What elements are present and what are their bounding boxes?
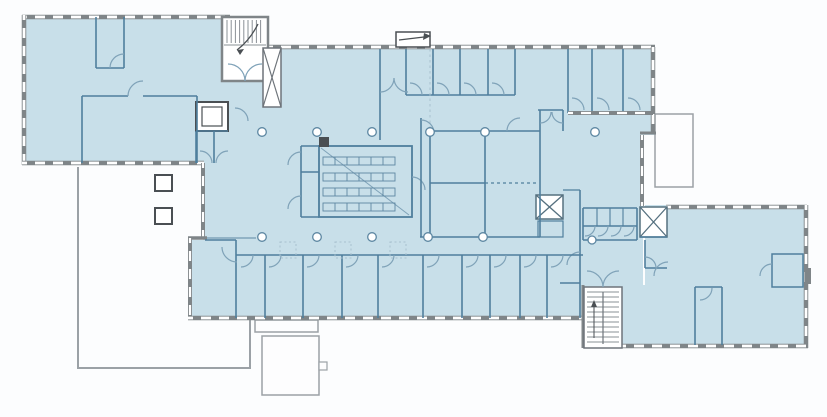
seminar-marker	[319, 137, 329, 147]
elevator-1	[196, 102, 228, 131]
column	[258, 233, 267, 242]
column	[313, 128, 322, 137]
block-a-fill	[22, 15, 230, 165]
column	[368, 128, 377, 137]
column	[481, 128, 490, 137]
entrance-structure-outline	[262, 336, 319, 395]
column-toilet	[588, 236, 596, 244]
entrance-tab	[319, 362, 327, 370]
column	[313, 233, 322, 242]
annex-outline	[655, 114, 693, 187]
canopy-step-outline	[255, 320, 318, 332]
terrace-column-1	[155, 175, 172, 191]
column	[591, 128, 600, 137]
column	[368, 233, 377, 242]
terrace-column-2	[155, 208, 172, 224]
bottom-left-ext-fill	[190, 240, 230, 320]
floor-plan	[0, 0, 827, 417]
column	[258, 128, 267, 137]
right-wing-fill	[645, 205, 808, 348]
column	[479, 233, 488, 242]
column	[426, 128, 435, 137]
wing-wall-recess	[805, 268, 811, 284]
column	[424, 233, 433, 242]
floor-plan-canvas	[0, 0, 827, 417]
